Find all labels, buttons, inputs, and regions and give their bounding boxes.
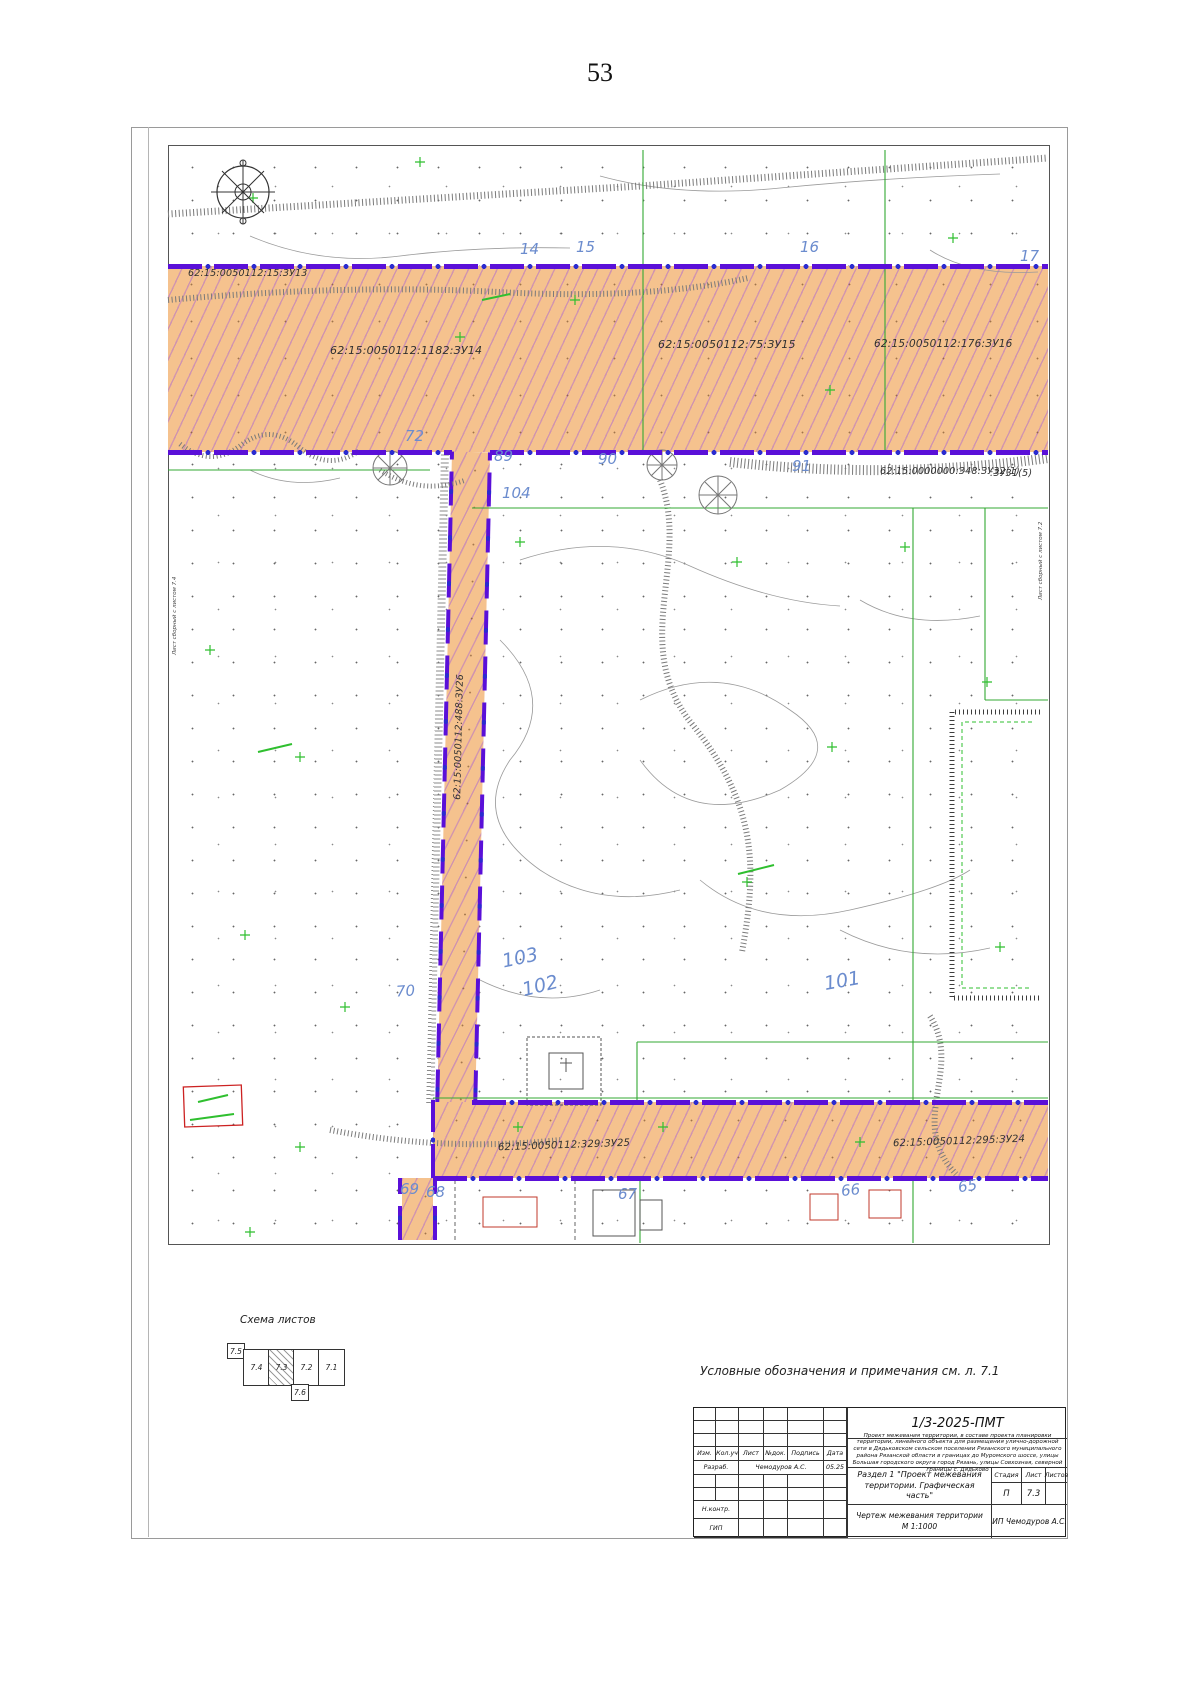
col-podpis: Подпись	[788, 1447, 824, 1461]
developer-name: Чемодуров А.С.	[739, 1461, 824, 1475]
boundary-line	[431, 1100, 435, 1178]
edge-label-right: Лист сборный с листом 7.2	[1038, 522, 1044, 600]
point-number: 67	[618, 1185, 637, 1203]
sheet-cell-7-4: 7.4	[243, 1349, 270, 1386]
point-number: 16	[800, 238, 819, 256]
col-data: Дата	[824, 1447, 847, 1461]
stage-header: Стадия	[991, 1468, 1021, 1483]
boundary-line	[490, 450, 1048, 455]
drawing-title-cell: Чертеж межевания территории М 1:1000	[847, 1505, 991, 1538]
company-name: ИП Чемодуров А.С.	[991, 1505, 1067, 1538]
parcel-label: 62:15:0050112:176:ЗУ16	[874, 338, 1013, 350]
parcel-band-top	[168, 266, 1048, 452]
parcel-label: 62:15:0050112:15:ЗУ13	[188, 268, 308, 279]
point-number: 15	[576, 238, 595, 256]
col-koluch: Кол.уч	[716, 1447, 739, 1461]
title-block: Изм. Кол.уч Лист №док. Подпись Дата Разр…	[693, 1407, 1066, 1537]
sheet-value: 7.3	[1021, 1483, 1045, 1505]
point-number: 65	[957, 1176, 978, 1196]
sheet-cell-7-1: 7.1	[318, 1349, 345, 1386]
point-number: 69	[400, 1180, 419, 1198]
point-number: 104	[502, 484, 531, 502]
sheet-cell-7-3-current: 7.3	[268, 1349, 295, 1386]
section-title: Раздел 1 "Проект межевания территории. Г…	[847, 1468, 991, 1505]
parcel-label: 62:15:0050112:1182:ЗУ14	[330, 344, 482, 357]
point-number: 91	[792, 457, 811, 475]
title-block-revision-grid: Изм. Кол.уч Лист №док. Подпись Дата Разр…	[694, 1408, 847, 1536]
col-izm: Изм.	[694, 1447, 716, 1461]
drawing-scale: М 1:1000	[902, 1522, 937, 1532]
point-number: 89	[494, 447, 513, 465]
point-number: 90	[598, 450, 617, 468]
point-number: 14	[520, 240, 539, 258]
boundary-line	[433, 1176, 1048, 1181]
sheets-total-value	[1045, 1483, 1067, 1505]
point-number: 17	[1020, 247, 1039, 265]
parcel-label: 62:15:0050112:75:ЗУ15	[658, 338, 796, 351]
drawing-title: Чертеж межевания территории	[856, 1511, 983, 1521]
page-number: 53	[0, 58, 1200, 88]
parcel-label: :ЗУ31(5)	[990, 468, 1032, 479]
sheets-total-header: Листов	[1045, 1468, 1067, 1483]
col-ndok: №док.	[764, 1447, 788, 1461]
point-number: 66	[840, 1180, 861, 1200]
point-number: 68	[426, 1183, 445, 1201]
sheet-header: Лист	[1021, 1468, 1045, 1483]
binding-margin-line	[148, 127, 149, 1537]
sheet-scheme-title: Схема листов	[240, 1314, 316, 1326]
legend-note: Условные обозначения и примечания см. л.…	[700, 1364, 999, 1378]
stage-value: П	[991, 1483, 1021, 1505]
edge-label-left: Лист сборный с листом 7.4	[172, 577, 178, 655]
project-description: Проект межевания территории, в составе п…	[847, 1439, 1067, 1468]
col-list: Лист	[739, 1447, 764, 1461]
sheet-cell-7-6: 7.6	[291, 1384, 309, 1401]
developer-date: 05.25	[824, 1461, 847, 1475]
boundary-line	[168, 450, 452, 455]
developer-role: Разраб.	[694, 1461, 739, 1475]
point-number: 72	[405, 427, 424, 445]
sheet-cell-7-2: 7.2	[293, 1349, 320, 1386]
boundary-line	[472, 1100, 1048, 1105]
gip-role: ГИП	[694, 1519, 739, 1538]
ncontrol-role: Н.контр.	[694, 1501, 739, 1519]
point-number: 70	[395, 981, 415, 1000]
